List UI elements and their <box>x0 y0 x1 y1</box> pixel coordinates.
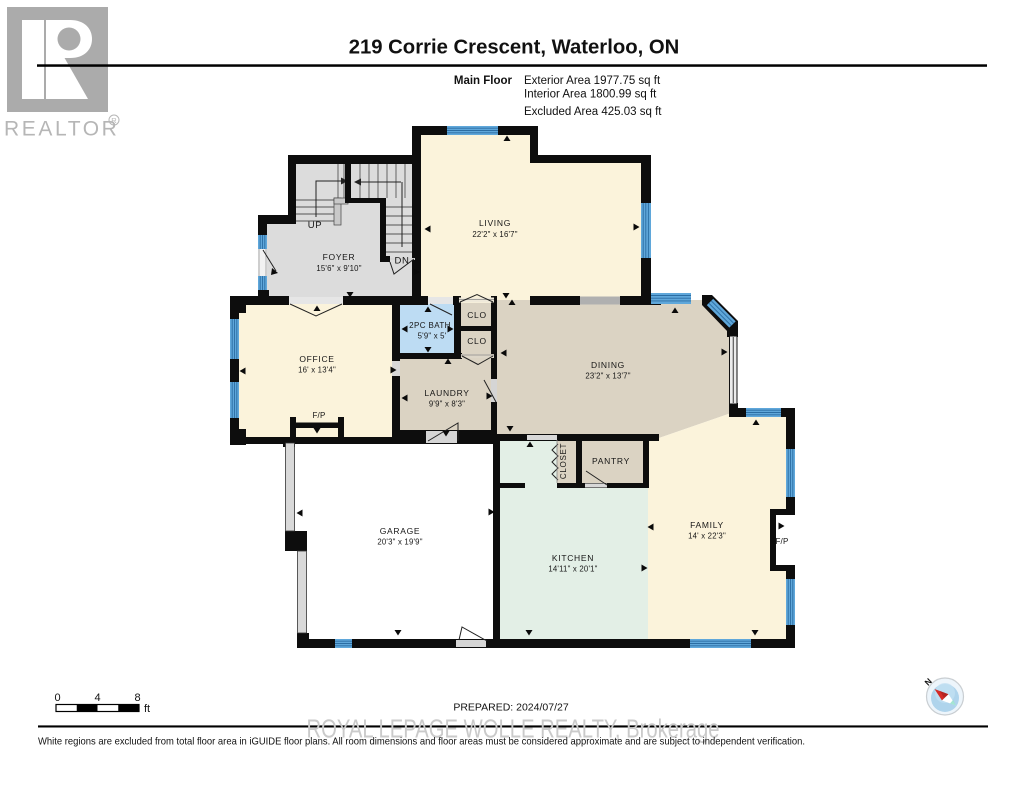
svg-text:Exterior Area 1977.75 sq ft: Exterior Area 1977.75 sq ft <box>524 75 661 87</box>
svg-text:4: 4 <box>94 692 100 704</box>
svg-text:219 Corrie Crescent, Waterloo,: 219 Corrie Crescent, Waterloo, ON <box>349 37 680 59</box>
svg-text:Main Floor: Main Floor <box>454 75 513 87</box>
svg-text:KITCHEN: KITCHEN <box>552 553 594 563</box>
svg-text:GARAGE: GARAGE <box>380 526 421 536</box>
svg-text:UP: UP <box>308 220 323 231</box>
svg-text:0: 0 <box>54 692 60 704</box>
svg-text:REALTOR: REALTOR <box>4 118 119 141</box>
svg-text:LAUNDRY: LAUNDRY <box>424 388 469 398</box>
svg-text:Excluded Area 425.03 sq ft: Excluded Area 425.03 sq ft <box>524 106 662 118</box>
svg-text:14' x 22'3": 14' x 22'3" <box>688 532 726 541</box>
svg-text:5'9" x 5': 5'9" x 5' <box>418 332 447 341</box>
svg-text:DN: DN <box>394 256 409 267</box>
svg-text:FAMILY: FAMILY <box>690 520 724 530</box>
svg-text:Interior Area 1800.99 sq ft: Interior Area 1800.99 sq ft <box>524 89 657 101</box>
svg-text:CLO: CLO <box>467 336 487 346</box>
svg-text:9'9" x 8'3": 9'9" x 8'3" <box>429 400 465 409</box>
svg-text:20'3" x 19'9": 20'3" x 19'9" <box>377 538 422 547</box>
svg-text:22'2" x 16'7": 22'2" x 16'7" <box>472 230 517 239</box>
svg-text:OFFICE: OFFICE <box>299 354 334 364</box>
svg-text:F/P: F/P <box>775 537 788 546</box>
svg-text:PANTRY: PANTRY <box>592 456 630 466</box>
svg-text:16' x 13'4": 16' x 13'4" <box>298 366 336 375</box>
svg-text:White regions are excluded fro: White regions are excluded from total fl… <box>38 737 805 748</box>
svg-text:15'6" x 9'10": 15'6" x 9'10" <box>316 264 361 273</box>
svg-text:2PC BATH: 2PC BATH <box>409 321 451 330</box>
svg-text:23'2" x 13'7": 23'2" x 13'7" <box>585 372 630 381</box>
svg-text:R: R <box>111 116 117 125</box>
svg-text:ft: ft <box>144 703 150 715</box>
svg-text:FOYER: FOYER <box>323 252 356 262</box>
svg-text:8: 8 <box>134 692 140 704</box>
svg-text:DINING: DINING <box>591 360 625 370</box>
svg-text:PREPARED: 2024/07/27: PREPARED: 2024/07/27 <box>453 702 569 714</box>
svg-text:14'11" x 20'1": 14'11" x 20'1" <box>548 565 597 574</box>
svg-text:CLO: CLO <box>467 310 487 320</box>
svg-text:F/P: F/P <box>312 411 325 420</box>
svg-text:LIVING: LIVING <box>479 218 511 228</box>
svg-text:CLOSET: CLOSET <box>559 443 568 479</box>
